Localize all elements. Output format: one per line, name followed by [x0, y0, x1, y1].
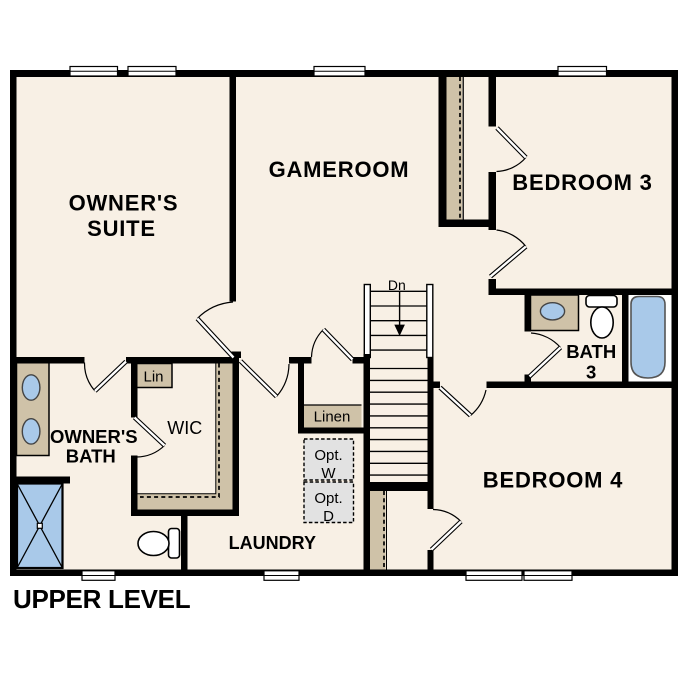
svg-text:GAMEROOM: GAMEROOM [269, 157, 410, 182]
svg-text:WIC: WIC [167, 418, 202, 438]
svg-text:UPPER LEVEL: UPPER LEVEL [13, 584, 191, 614]
svg-text:BEDROOM 4: BEDROOM 4 [483, 468, 623, 493]
svg-text:D: D [323, 508, 334, 525]
svg-text:OWNER'S: OWNER'S [50, 426, 138, 447]
svg-text:BATH: BATH [566, 341, 616, 362]
svg-text:SUITE: SUITE [87, 216, 156, 241]
svg-text:BATH: BATH [66, 446, 116, 467]
svg-text:OWNER'S: OWNER'S [69, 191, 179, 216]
svg-text:Lin: Lin [143, 369, 163, 386]
svg-text:BEDROOM 3: BEDROOM 3 [512, 170, 652, 195]
svg-text:Opt.: Opt. [314, 447, 342, 464]
svg-text:Dn: Dn [388, 277, 406, 293]
svg-text:LAUNDRY: LAUNDRY [229, 533, 316, 553]
svg-text:Linen: Linen [314, 409, 351, 426]
svg-text:W: W [321, 465, 336, 482]
svg-text:3: 3 [586, 361, 596, 382]
svg-text:Opt.: Opt. [314, 490, 342, 507]
